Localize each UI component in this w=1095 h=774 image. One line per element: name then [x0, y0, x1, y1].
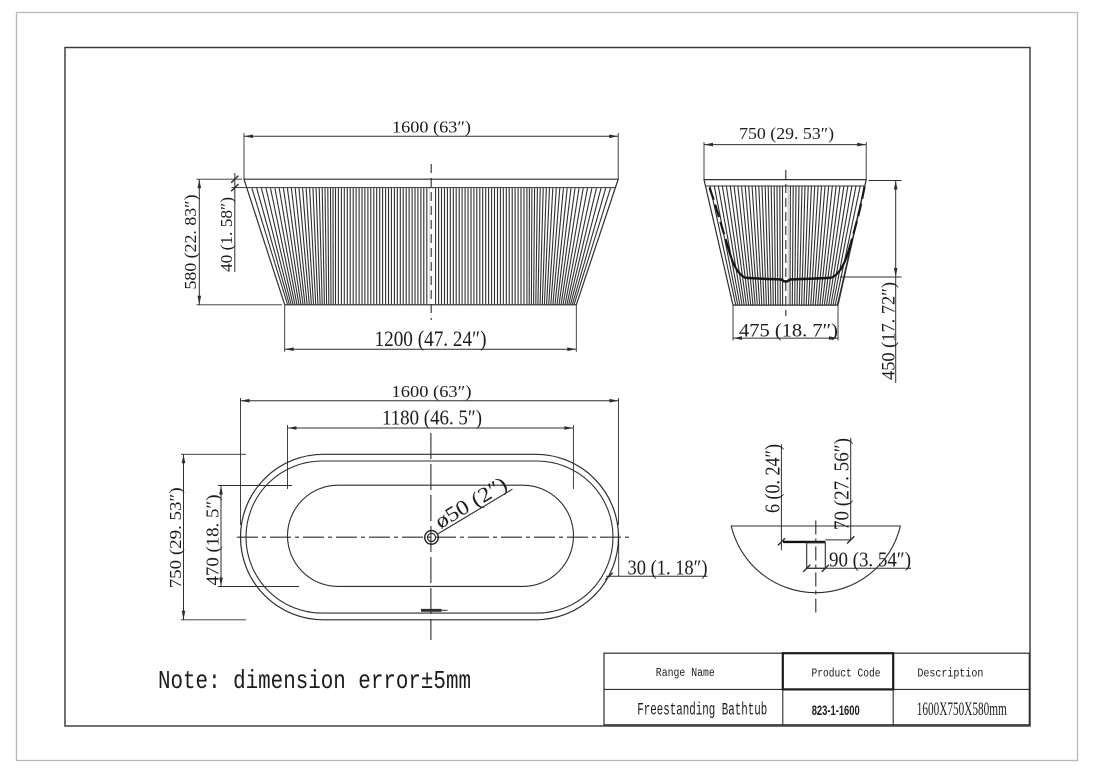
- svg-text:Product Code: Product Code: [812, 668, 881, 681]
- svg-text:823-1-1600: 823-1-1600: [812, 703, 860, 718]
- svg-text:750 (29. 53″): 750 (29. 53″): [166, 487, 185, 588]
- svg-text:Description: Description: [917, 668, 983, 681]
- svg-text:1180 (46. 5″): 1180 (46. 5″): [382, 405, 482, 429]
- svg-text:470 (18. 5″): 470 (18. 5″): [203, 494, 223, 585]
- svg-text:475 (18. 7″): 475 (18. 7″): [739, 320, 838, 341]
- svg-text:Note: dimension error±5mm: Note: dimension error±5mm: [158, 666, 471, 696]
- svg-text:750 (29. 53″): 750 (29. 53″): [739, 124, 834, 143]
- svg-text:Range Name: Range Name: [656, 667, 715, 680]
- svg-text:580 (22. 83″): 580 (22. 83″): [181, 195, 200, 290]
- svg-text:1600X750X580mm: 1600X750X580mm: [917, 700, 1007, 720]
- svg-text:40 (1. 58″): 40 (1. 58″): [217, 197, 236, 272]
- svg-text:30 (1. 18″): 30 (1. 18″): [628, 556, 708, 580]
- svg-text:1600 (63″): 1600 (63″): [392, 118, 471, 137]
- svg-text:70 (27. 56″): 70 (27. 56″): [830, 438, 854, 530]
- svg-text:6 (0. 24″): 6 (0. 24″): [760, 444, 784, 513]
- svg-text:1200 (47. 24″): 1200 (47. 24″): [375, 326, 487, 351]
- svg-text:Freestanding Bathtub: Freestanding Bathtub: [637, 701, 767, 721]
- svg-text:450 (17. 72″): 450 (17. 72″): [880, 282, 900, 380]
- svg-text:1600 (63″): 1600 (63″): [392, 382, 472, 401]
- svg-text:90 (3. 54″): 90 (3. 54″): [829, 547, 911, 571]
